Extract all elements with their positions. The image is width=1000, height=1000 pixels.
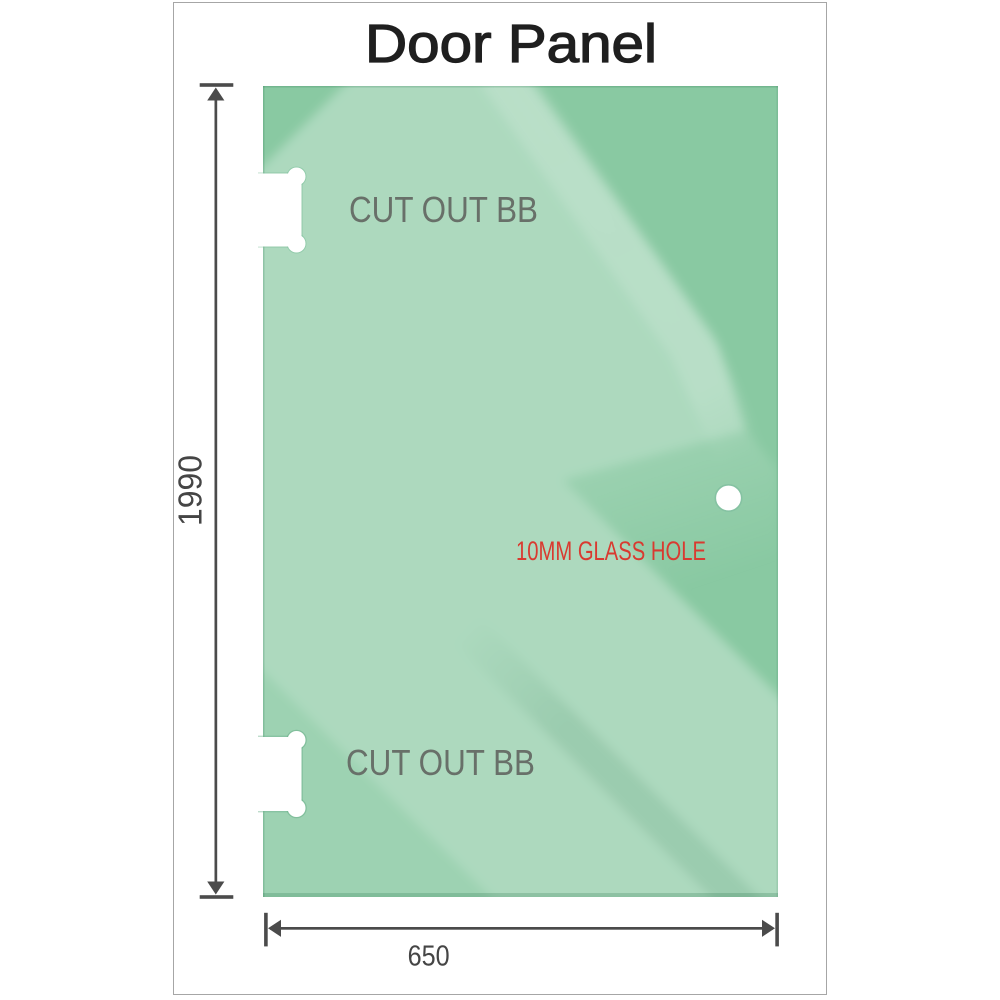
svg-text:Door Panel: Door Panel	[365, 14, 657, 74]
svg-text:650: 650	[408, 941, 450, 973]
svg-text:10MM GLASS HOLE: 10MM GLASS HOLE	[516, 536, 706, 566]
svg-text:1990: 1990	[172, 455, 209, 526]
svg-text:CUT OUT BB: CUT OUT BB	[346, 742, 535, 783]
svg-text:CUT OUT BB: CUT OUT BB	[349, 189, 538, 230]
